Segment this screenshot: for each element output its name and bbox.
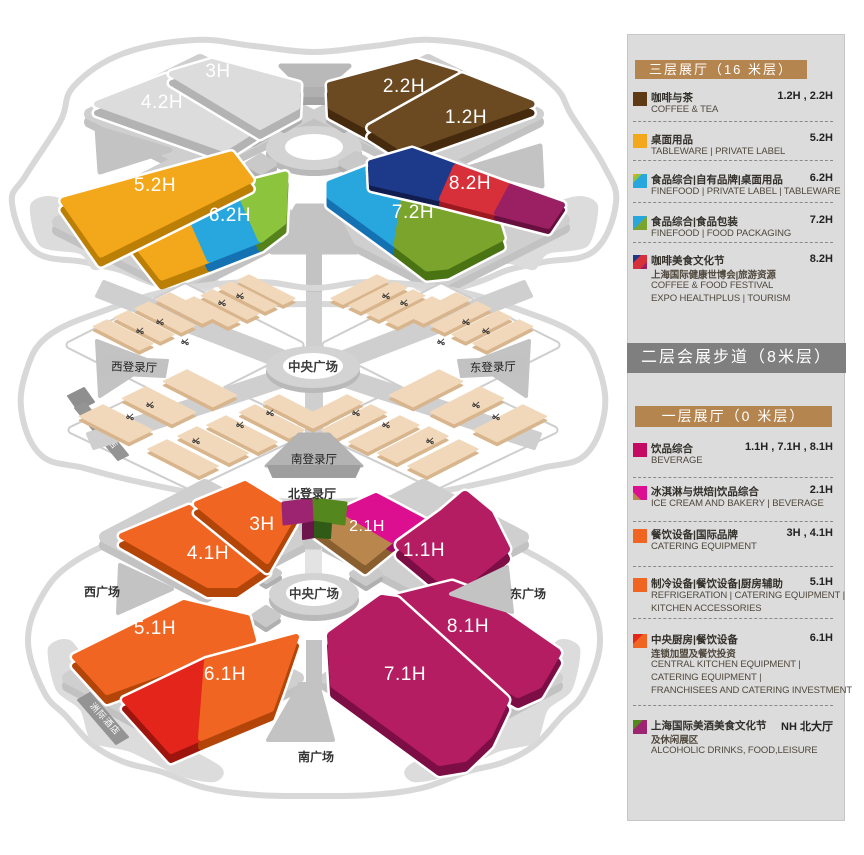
svg-text:中央广场: 中央广场	[289, 586, 339, 601]
svg-text:7.2H: 7.2H	[392, 202, 434, 223]
svg-text:1.1H: 1.1H	[403, 540, 445, 561]
svg-text:南广场: 南广场	[298, 749, 334, 764]
svg-text:3H: 3H	[205, 61, 230, 82]
svg-text:6.2H: 6.2H	[209, 205, 251, 226]
svg-text:中央广场: 中央广场	[288, 359, 338, 374]
svg-text:东广场: 东广场	[510, 586, 546, 601]
svg-text:1.2H: 1.2H	[445, 107, 487, 128]
svg-text:8.2H: 8.2H	[449, 173, 491, 194]
svg-text:7.1H: 7.1H	[384, 664, 426, 685]
svg-text:北登录厅: 北登录厅	[288, 486, 336, 501]
svg-text:5.1H: 5.1H	[134, 618, 176, 639]
svg-text:3H: 3H	[249, 514, 274, 535]
svg-text:2.2H: 2.2H	[383, 76, 425, 97]
svg-text:4.1H: 4.1H	[187, 543, 229, 564]
svg-text:5.2H: 5.2H	[134, 175, 176, 196]
svg-text:8.1H: 8.1H	[447, 616, 489, 637]
svg-text:南登录厅: 南登录厅	[291, 452, 337, 466]
svg-text:4.2H: 4.2H	[141, 92, 183, 113]
svg-text:西广场: 西广场	[84, 584, 120, 599]
svg-text:2.1H: 2.1H	[349, 518, 385, 535]
svg-text:6.1H: 6.1H	[204, 664, 246, 685]
